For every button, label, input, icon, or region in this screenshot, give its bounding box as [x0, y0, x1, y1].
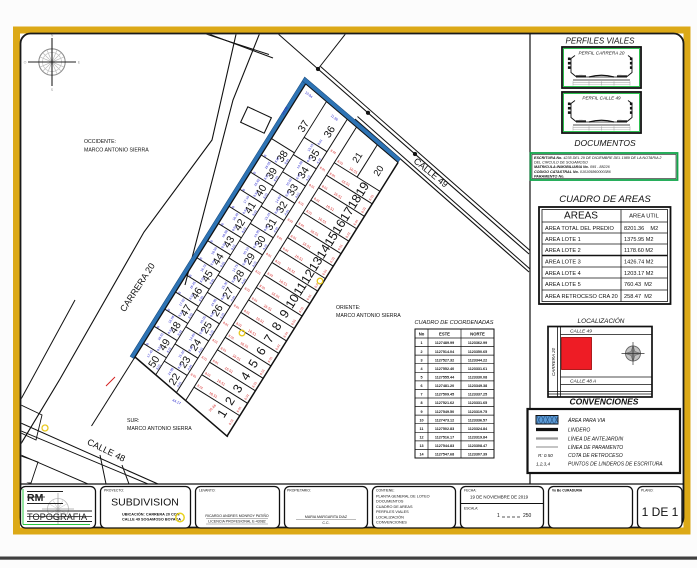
- svg-text:AREA LOTE 3: AREA LOTE 3: [545, 260, 581, 266]
- svg-text:LOCALIZACIÓN: LOCALIZACIÓN: [376, 514, 404, 519]
- svg-text:UBICACIÓN: CARRERA 20 CON: UBICACIÓN: CARRERA 20 CON: [122, 512, 180, 517]
- svg-text:ESCRITURA No. 4235 DEL 29 DE D: ESCRITURA No. 4235 DEL 29 DE DICIEMBRE D…: [534, 156, 661, 160]
- svg-text:ÁREA PARA VIA: ÁREA PARA VIA: [567, 417, 606, 424]
- svg-text:LÍNEA DE PARAMENTO: LÍNEA DE PARAMENTO: [568, 444, 623, 451]
- svg-text:CUADRO DE COORDENADAS: CUADRO DE COORDENADAS: [415, 320, 494, 326]
- svg-text:PERFIL CARRERA 20: PERFIL CARRERA 20: [579, 51, 625, 56]
- svg-text:11: 11: [420, 427, 424, 431]
- svg-text:CALLE 49: CALLE 49: [570, 329, 592, 335]
- svg-text:1123349.38: 1123349.38: [468, 384, 487, 388]
- svg-text:CODIGO CATASTRAL No. 010105860: CODIGO CATASTRAL No. 010105860000386: [534, 170, 612, 174]
- svg-text:1123344.22: 1123344.22: [468, 358, 487, 362]
- svg-text:LÍNEA DE ANTEJARDIN: LÍNEA DE ANTEJARDIN: [568, 436, 624, 443]
- svg-text:CONTIENE:: CONTIENE:: [376, 489, 395, 493]
- svg-text:1123331.61: 1123331.61: [468, 367, 487, 371]
- svg-text:CALLE 49 SOGAMOSO BOYACA: CALLE 49 SOGAMOSO BOYACA: [122, 518, 181, 522]
- svg-text:1123336.57: 1123336.57: [468, 418, 487, 422]
- svg-text:1127547.68: 1127547.68: [435, 453, 454, 457]
- svg-text:1127473.12: 1127473.12: [435, 418, 454, 422]
- svg-text:1127509.45: 1127509.45: [435, 393, 454, 397]
- svg-text:1123337.25: 1123337.25: [468, 393, 487, 397]
- svg-text:Vo Bo CURADURIA: Vo Bo CURADURIA: [552, 489, 583, 493]
- svg-text:___: ___: [578, 119, 583, 121]
- svg-text:1127527.32: 1127527.32: [435, 358, 454, 362]
- svg-text:1127555.44: 1127555.44: [435, 376, 455, 380]
- svg-text:AREA LOTE 2: AREA LOTE 2: [545, 248, 581, 254]
- svg-text:1127489.99: 1127489.99: [435, 341, 454, 345]
- svg-text:8201.36 M2: 8201.36 M2: [624, 226, 658, 232]
- svg-text:No: No: [419, 332, 425, 337]
- svg-text:CONVENCIONES: CONVENCIONES: [376, 521, 407, 525]
- svg-text:MARCO ANTONIO SIERRA: MARCO ANTONIO SIERRA: [127, 426, 192, 432]
- svg-text:8: 8: [420, 401, 422, 405]
- svg-text:___: ___: [617, 119, 622, 121]
- svg-text:RM: RM: [27, 492, 44, 504]
- svg-text:AREA TOTAL DEL PREDIO: AREA TOTAL DEL PREDIO: [545, 226, 615, 232]
- svg-text:1127502.83: 1127502.83: [435, 427, 454, 431]
- svg-text:ESTE: ESTE: [439, 332, 450, 337]
- svg-text:7: 7: [420, 393, 422, 397]
- svg-text:MARCO ANTONIO SIERRA: MARCO ANTONIO SIERRA: [336, 313, 401, 319]
- svg-text:MATRICULA INMOBILIARIA No. 095: MATRICULA INMOBILIARIA No. 095 - 88226: [534, 165, 611, 169]
- svg-text:12: 12: [419, 436, 423, 440]
- svg-text:AREA LOTE 1: AREA LOTE 1: [545, 237, 581, 243]
- svg-text:13: 13: [419, 444, 423, 448]
- svg-text:FECHA:: FECHA:: [464, 489, 476, 493]
- svg-text:SUR:: SUR:: [127, 418, 139, 424]
- svg-text:MARCO ANTONIO SIERRA: MARCO ANTONIO SIERRA: [84, 148, 149, 154]
- svg-text:1,2,3,4: 1,2,3,4: [536, 462, 550, 467]
- svg-text:PLANO:: PLANO:: [641, 489, 653, 493]
- svg-text:2: 2: [420, 350, 422, 354]
- svg-text:1 DE 1: 1 DE 1: [642, 505, 679, 519]
- svg-text:CONVENCIONES: CONVENCIONES: [570, 397, 639, 407]
- svg-text:LOCALIZACIÓN: LOCALIZACIÓN: [578, 316, 625, 325]
- svg-text:9: 9: [420, 410, 422, 414]
- svg-text:CUADRO DE AREAS: CUADRO DE AREAS: [376, 505, 413, 509]
- svg-text:AREA LOTE 5: AREA LOTE 5: [545, 282, 581, 288]
- svg-text:AREAS: AREAS: [564, 211, 598, 222]
- svg-text:RICARDO ANDRES MONROY PATIÑO: RICARDO ANDRES MONROY PATIÑO: [205, 513, 269, 518]
- svg-text:1123308.47: 1123308.47: [468, 444, 487, 448]
- svg-text:C.C.: C.C.: [322, 521, 329, 525]
- svg-text:ORIENTE:: ORIENTE:: [336, 305, 361, 311]
- svg-text:ESCALA:: ESCALA:: [464, 507, 478, 511]
- svg-text:1123324.84: 1123324.84: [468, 427, 488, 431]
- svg-text:AREA UTIL: AREA UTIL: [629, 214, 659, 220]
- svg-text:___: ___: [617, 74, 622, 76]
- svg-text:MARIA MARGARITA DIAZ: MARIA MARGARITA DIAZ: [305, 515, 348, 519]
- svg-text:1123319.75: 1123319.75: [468, 410, 487, 414]
- svg-text:R: 0.50: R: 0.50: [538, 453, 553, 458]
- svg-text:OCCIDENTE:: OCCIDENTE:: [84, 139, 116, 145]
- svg-text:19 DE NOVIEMBRE DE 2019: 19 DE NOVIEMBRE DE 2019: [470, 495, 529, 500]
- svg-text:1: 1: [497, 513, 500, 519]
- svg-text:PLANTA GENERAL DE LOTEO: PLANTA GENERAL DE LOTEO: [376, 495, 430, 499]
- svg-text:DOCUMENTOS: DOCUMENTOS: [574, 138, 636, 148]
- svg-text:760.43 M2: 760.43 M2: [624, 282, 652, 288]
- svg-text:PROYECTO:: PROYECTO:: [104, 489, 124, 493]
- svg-text:1426.74 M2: 1426.74 M2: [624, 260, 654, 266]
- svg-text:1123350.65: 1123350.65: [468, 350, 487, 354]
- svg-text:CUADRO DE AREAS: CUADRO DE AREAS: [559, 194, 651, 205]
- svg-text:6: 6: [420, 384, 422, 388]
- svg-text:AREA LOTE 4: AREA LOTE 4: [545, 271, 581, 277]
- svg-text:1123362.99: 1123362.99: [468, 341, 487, 345]
- svg-text:1127514.04: 1127514.04: [435, 350, 455, 354]
- svg-text:1127544.83: 1127544.83: [435, 444, 454, 448]
- svg-text:1123330.08: 1123330.08: [468, 376, 487, 380]
- svg-text:LICENCIA PROFESIONAL E-4308: LICENCIA PROFESIONAL E-43082: [208, 520, 265, 524]
- svg-text:5: 5: [420, 376, 422, 380]
- svg-text:LEVANTO:: LEVANTO:: [199, 489, 216, 493]
- svg-text:SUBDIVISION: SUBDIVISION: [111, 497, 179, 509]
- svg-text:DOCUMENTOS: DOCUMENTOS: [376, 500, 404, 504]
- svg-text:1127516.17: 1127516.17: [435, 436, 454, 440]
- svg-text:1: 1: [420, 341, 422, 345]
- svg-text:1127521.62: 1127521.62: [435, 401, 454, 405]
- svg-text:NORTE: NORTE: [470, 332, 485, 337]
- svg-text:DEL CIRCULO DE SOGAMOSO: DEL CIRCULO DE SOGAMOSO: [534, 161, 588, 165]
- svg-text:COTA DE RETROCESO: COTA DE RETROCESO: [568, 453, 623, 459]
- svg-text:1123319.84: 1123319.84: [468, 436, 488, 440]
- svg-text:1203.17 M2: 1203.17 M2: [624, 271, 654, 277]
- svg-text:PUNTOS DE LINDEROS DE ESCRITUR: PUNTOS DE LINDEROS DE ESCRITURA: [568, 462, 663, 468]
- svg-text:O: O: [24, 61, 27, 65]
- svg-text:PERFILES VIALES: PERFILES VIALES: [376, 510, 409, 514]
- svg-text:PARAMENTO No.: PARAMENTO No.: [534, 174, 564, 178]
- svg-text:PROPIETARIO:: PROPIETARIO:: [287, 489, 311, 493]
- svg-text:___: ___: [578, 74, 583, 76]
- svg-text:250: 250: [523, 513, 532, 519]
- svg-text:CALLE 48 A: CALLE 48 A: [570, 379, 596, 385]
- svg-text:1375.95 M2: 1375.95 M2: [624, 237, 654, 243]
- svg-text:CARRERA 20: CARRERA 20: [551, 347, 556, 376]
- svg-text:3: 3: [420, 358, 422, 362]
- svg-text:10: 10: [419, 418, 423, 422]
- svg-text:TOPOGRAFIA: TOPOGRAFIA: [27, 512, 88, 522]
- svg-text:1127552.40: 1127552.40: [435, 367, 454, 371]
- svg-text:1127549.50: 1127549.50: [435, 410, 454, 414]
- svg-text:1123331.65: 1123331.65: [468, 401, 487, 405]
- svg-text:PERFILES VIALES: PERFILES VIALES: [566, 37, 636, 46]
- svg-text:AREA RETROCESO CRA 20: AREA RETROCESO CRA 20: [545, 294, 618, 300]
- svg-text:258.47 M2: 258.47 M2: [624, 294, 652, 300]
- svg-text:1127481.20: 1127481.20: [435, 384, 454, 388]
- svg-text:PERFIL CALLE 49: PERFIL CALLE 49: [582, 96, 621, 101]
- svg-text:LINDERO: LINDERO: [568, 428, 590, 434]
- svg-text:1123307.39: 1123307.39: [468, 453, 487, 457]
- svg-text:1178.60 M2: 1178.60 M2: [624, 248, 653, 254]
